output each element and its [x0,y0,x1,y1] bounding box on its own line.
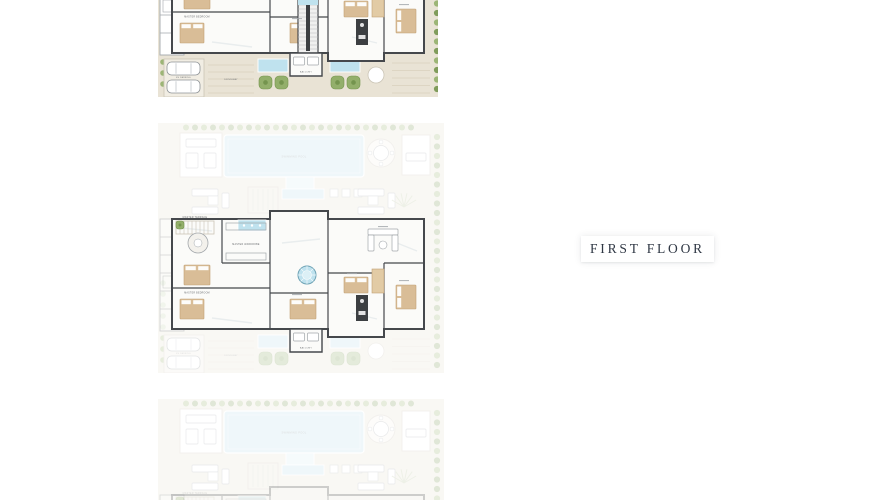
grounds-layer: SWIMMING POOLEV PARKINGDRIVEWAY [158,399,444,500]
svg-text:MASTER WARDROBE: MASTER WARDROBE [232,243,260,246]
svg-text:MASTER TERRACE: MASTER TERRACE [183,216,208,219]
floorplan-slide-ground-floor[interactable]: SWIMMING POOLEV PARKINGDRIVEWAYMASTER TE… [152,0,438,97]
staircase [298,0,318,53]
garage-parking: EV PARKING [164,59,204,97]
svg-text:BALCONY: BALCONY [300,71,312,74]
balcony: BALCONY [290,53,322,76]
floor-plan-drawing: SWIMMING POOLEV PARKINGDRIVEWAYMASTER TE… [152,123,450,373]
svg-text:MASTER TERRACE: MASTER TERRACE [183,492,208,495]
plunge-pool-left [258,59,288,72]
floorplan-slide-upper-floor[interactable]: SWIMMING POOLEV PARKINGDRIVEWAYMASTER TE… [152,399,450,500]
bathroom-core [356,295,368,321]
floor-plan-drawing: SWIMMING POOLEV PARKINGDRIVEWAYMASTER TE… [152,399,450,500]
jacuzzi [238,220,266,231]
driveway: DRIVEWAY [206,59,256,97]
svg-text:DRIVEWAY: DRIVEWAY [224,78,238,81]
driveway: DRIVEWAY [206,335,256,373]
svg-text:EV PARKING: EV PARKING [176,352,191,355]
bathroom-core [356,19,368,45]
floor-plan-drawing: SWIMMING POOLEV PARKINGDRIVEWAYMASTER TE… [152,0,438,97]
floorplans-page: SWIMMING POOLEV PARKINGDRIVEWAYMASTER TE… [0,0,890,500]
jacuzzi [238,496,266,500]
active-floor-label: FIRST FLOOR [581,236,714,262]
svg-text:BALCONY: BALCONY [300,347,312,350]
balcony: BALCONY [290,329,322,352]
svg-text:MASTER BEDROOM: MASTER BEDROOM [184,292,210,295]
svg-text:EV PARKING: EV PARKING [176,76,191,79]
stair-water-void [298,266,316,284]
svg-text:SWIMMING POOL: SWIMMING POOL [281,431,306,435]
plunge-pool-left [258,335,288,348]
svg-text:SWIMMING POOL: SWIMMING POOL [281,155,306,159]
floorplan-slide-first-floor[interactable]: SWIMMING POOLEV PARKINGDRIVEWAYMASTER TE… [152,123,450,373]
svg-text:MASTER BEDROOM: MASTER BEDROOM [184,16,210,19]
svg-text:DRIVEWAY: DRIVEWAY [224,354,238,357]
garage-parking: EV PARKING [164,335,204,373]
